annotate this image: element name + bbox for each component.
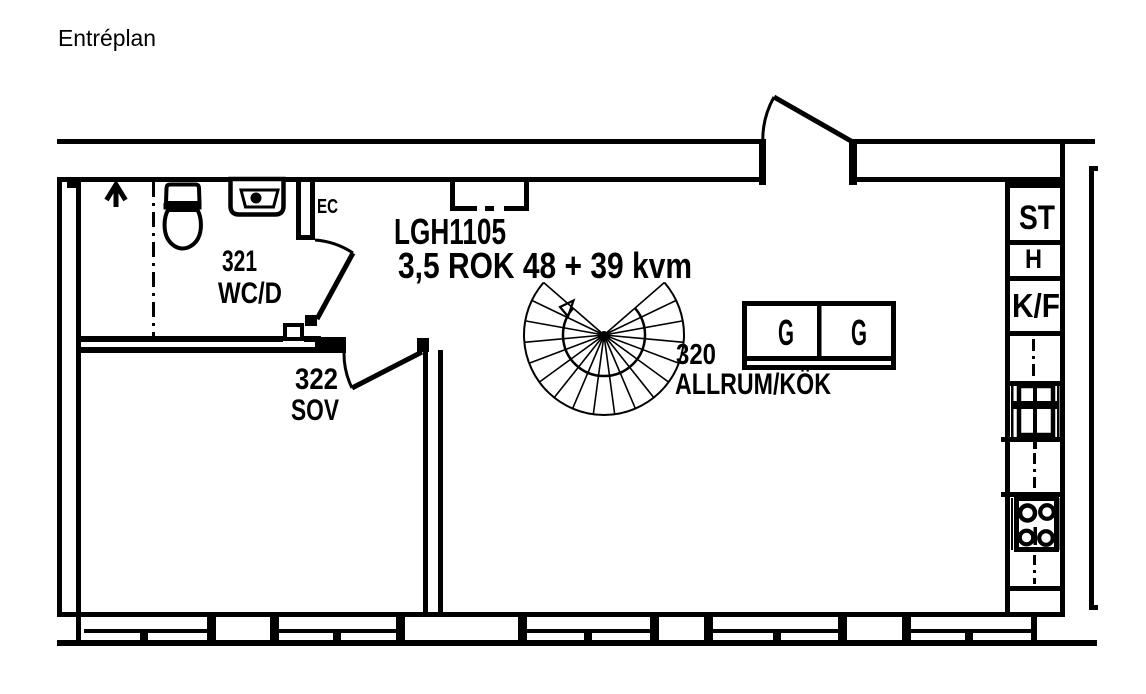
- svg-text:G: G: [778, 312, 794, 353]
- svg-text:322: 322: [295, 363, 338, 396]
- svg-text:SOV: SOV: [291, 394, 339, 427]
- svg-text:3,5 ROK 48 + 39 kvm: 3,5 ROK 48 + 39 kvm: [398, 245, 692, 286]
- svg-text:ST: ST: [1019, 199, 1055, 237]
- svg-text:WC/D: WC/D: [218, 277, 282, 310]
- svg-text:Entréplan: Entréplan: [58, 25, 156, 51]
- svg-text:K/F: K/F: [1012, 287, 1060, 324]
- svg-text:ALLRUM/KÖK: ALLRUM/KÖK: [675, 368, 831, 401]
- svg-text:H: H: [1025, 244, 1042, 274]
- svg-text:EC: EC: [317, 196, 338, 218]
- svg-text:G: G: [851, 312, 867, 353]
- svg-text:321: 321: [222, 245, 257, 278]
